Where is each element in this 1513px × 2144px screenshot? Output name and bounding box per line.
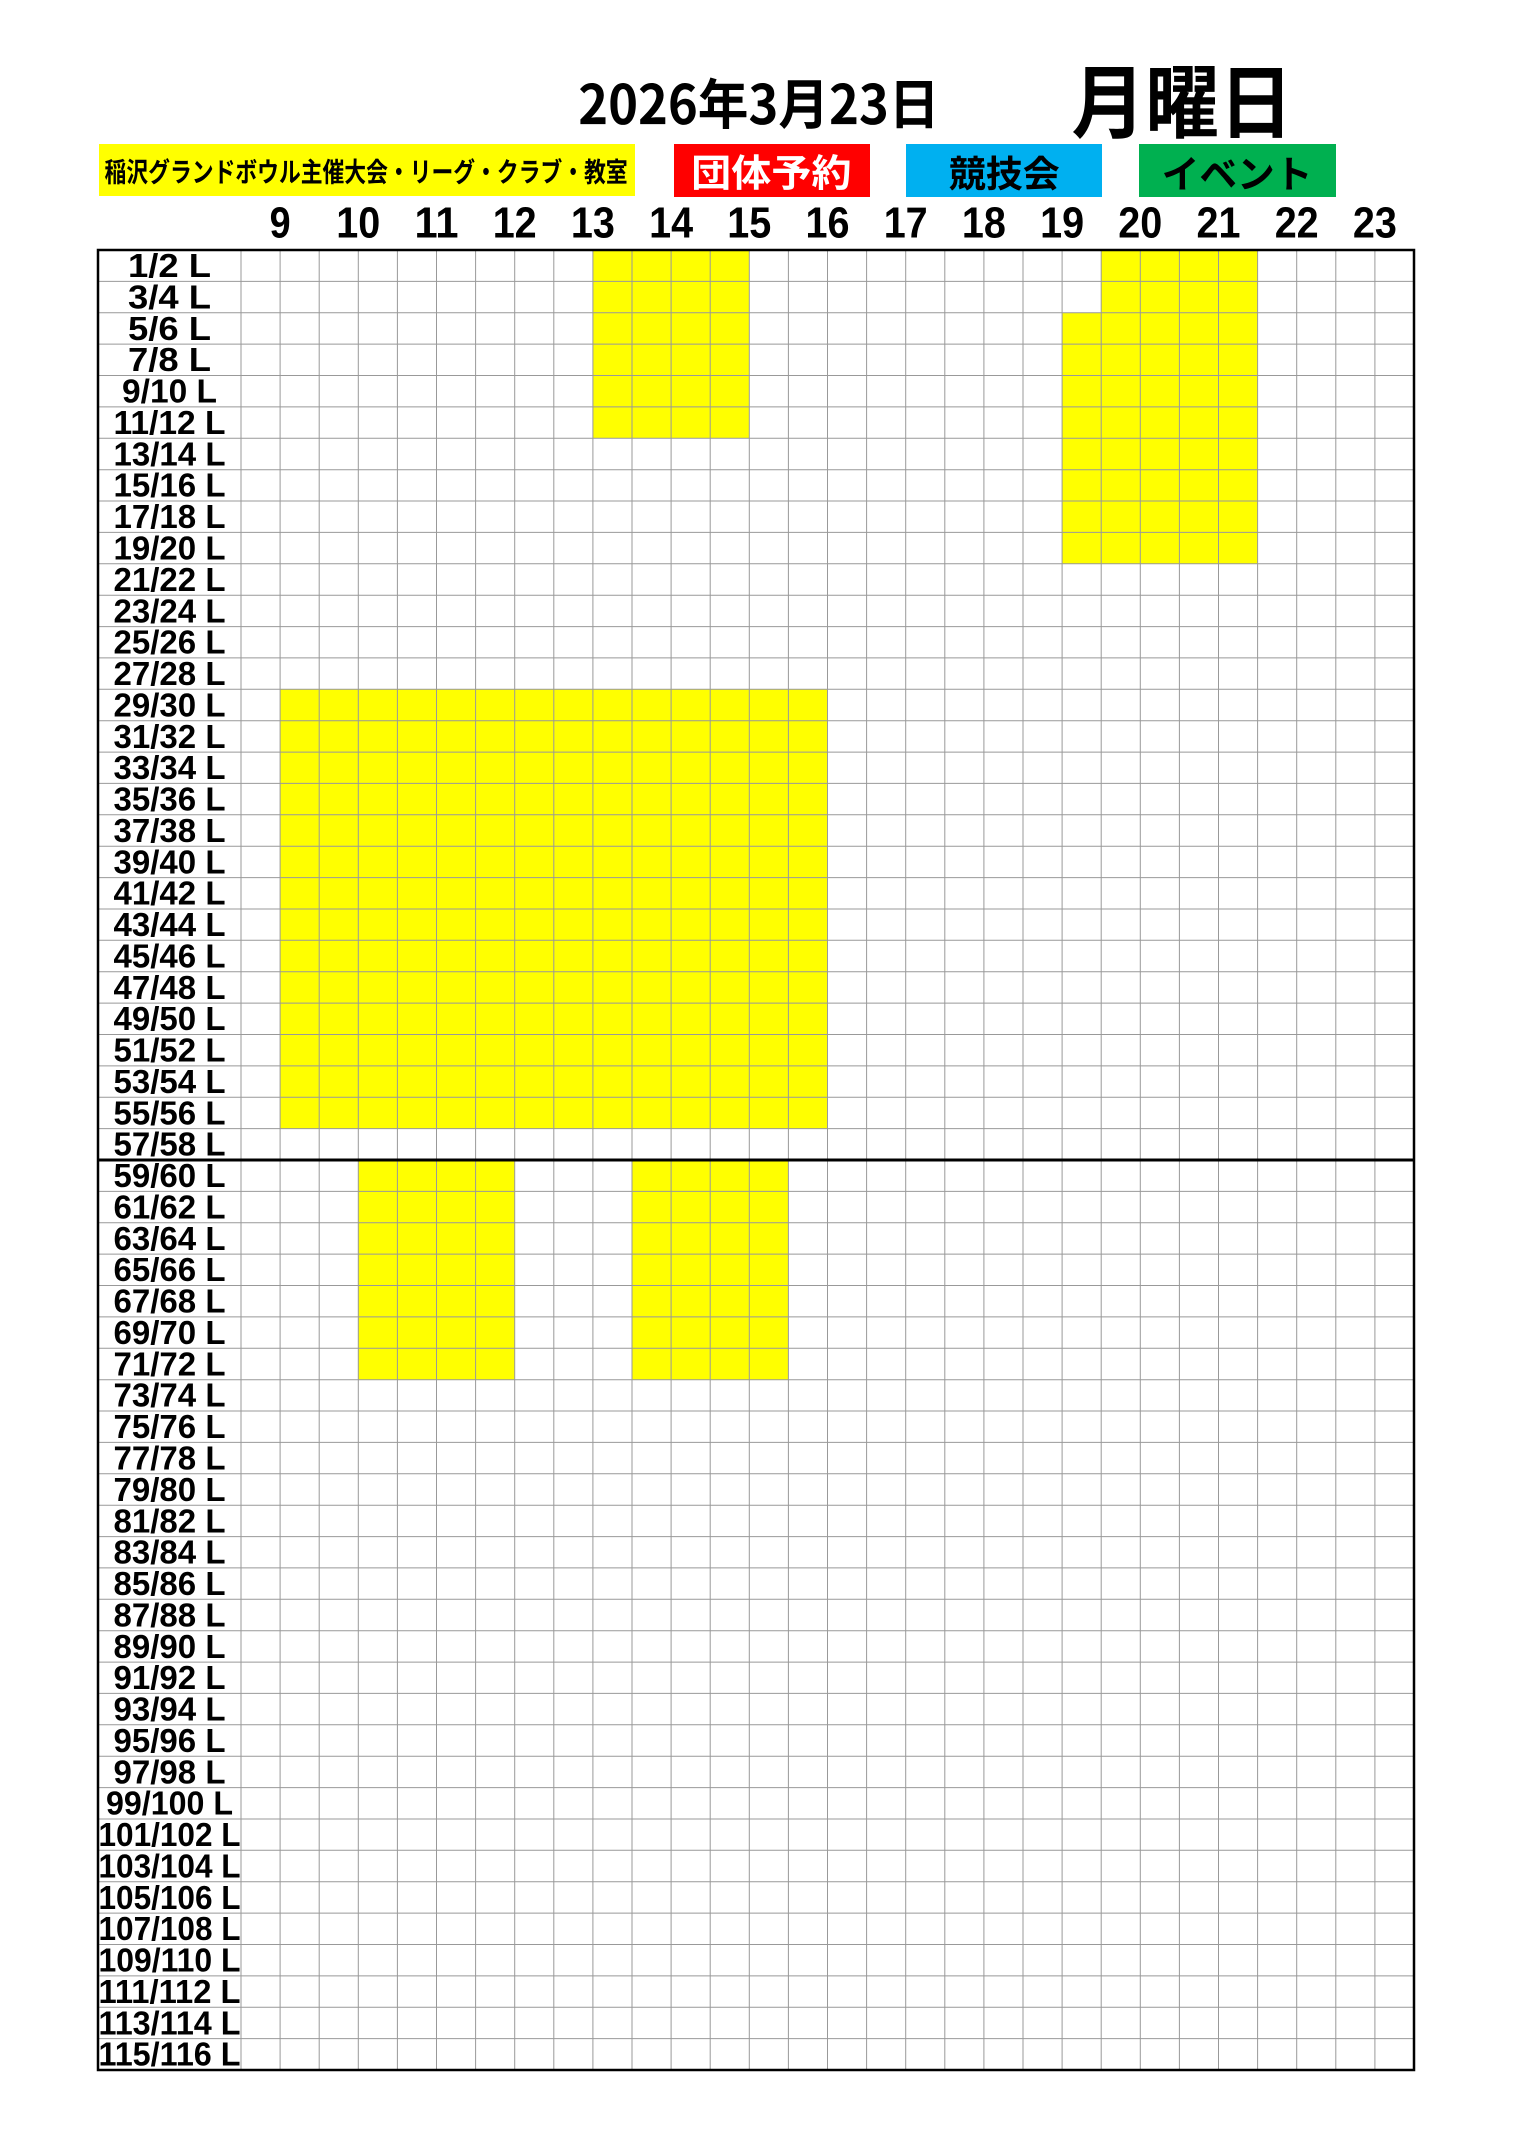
svg-text:10: 10 — [336, 199, 380, 248]
svg-text:18: 18 — [962, 199, 1006, 248]
svg-text:9: 9 — [270, 199, 291, 248]
svg-text:19: 19 — [1040, 199, 1084, 248]
svg-text:115/116 L: 115/116 L — [99, 2037, 241, 2074]
svg-text:16: 16 — [806, 199, 850, 248]
svg-text:23: 23 — [1353, 199, 1397, 248]
svg-text:12: 12 — [493, 199, 537, 248]
svg-text:15: 15 — [727, 199, 771, 248]
svg-text:20: 20 — [1118, 199, 1162, 248]
svg-text:13: 13 — [571, 199, 615, 248]
svg-text:21: 21 — [1197, 199, 1241, 248]
svg-text:14: 14 — [649, 199, 693, 248]
svg-text:11: 11 — [415, 199, 459, 248]
svg-text:22: 22 — [1275, 199, 1319, 248]
svg-text:17: 17 — [884, 199, 928, 248]
